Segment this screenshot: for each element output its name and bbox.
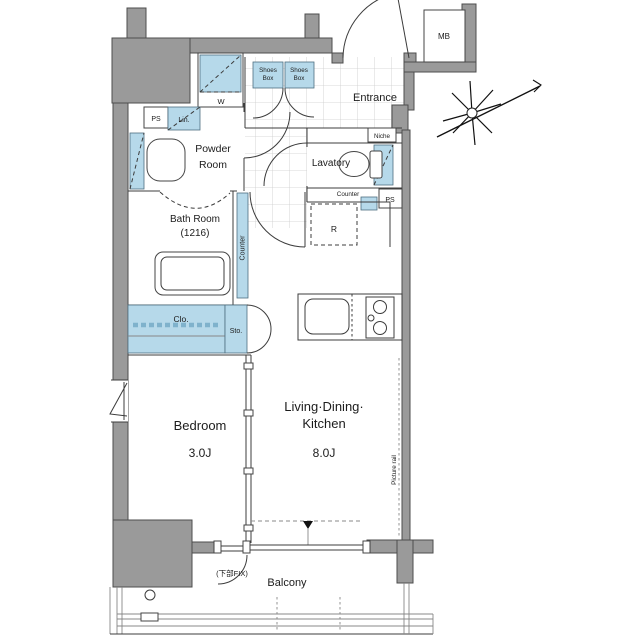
- closet: [128, 305, 225, 353]
- wash-basin: [147, 139, 185, 181]
- label-niche: Niche: [374, 133, 391, 140]
- ldk-sliding-window: [250, 545, 364, 550]
- label-counter-lavatory: Counter: [337, 191, 359, 198]
- hall-counter: Counter: [237, 193, 248, 298]
- label-counter-hall: Counter: [240, 235, 247, 261]
- label-shoes-box-1: Shoes: [259, 67, 277, 74]
- bedroom-balcony-door: [221, 546, 243, 551]
- compass-arrowhead: [533, 80, 541, 92]
- label-picture-rail: Picture rail: [391, 455, 398, 485]
- meter-box: MB: [424, 10, 465, 62]
- balcony-drain: [145, 590, 155, 600]
- label-refrigerator: R: [331, 224, 337, 234]
- balcony-railing: [117, 614, 433, 626]
- balcony-left-edge: [110, 587, 122, 634]
- floor-plan: MB Entrance Shoes Box Shoes Box W PS Lin…: [0, 0, 640, 639]
- entrance-door-arc: [343, 0, 397, 58]
- label-ldk-size: 8.0J: [313, 446, 336, 460]
- svg-text:(1216): (1216): [181, 228, 210, 239]
- svg-text:Box: Box: [263, 75, 275, 82]
- balcony-partition: [277, 597, 340, 632]
- label-bedroom: Bedroom: [174, 418, 227, 433]
- label-storage: Sto.: [230, 328, 243, 335]
- svg-text:Kitchen: Kitchen: [302, 416, 345, 431]
- washer-closet: W: [198, 53, 243, 107]
- svg-text:Room: Room: [199, 159, 227, 171]
- label-balcony: Balcony: [267, 577, 307, 589]
- label-washer: W: [217, 97, 225, 106]
- svg-text:Box: Box: [294, 75, 306, 82]
- label-fix-note: (下部FIX): [216, 568, 248, 578]
- label-entrance: Entrance: [353, 92, 397, 104]
- label-bedroom-size: 3.0J: [189, 446, 212, 460]
- toilet-tank: [370, 151, 382, 178]
- label-mb: MB: [438, 32, 450, 41]
- compass-center: [467, 108, 477, 118]
- label-lavatory: Lavatory: [312, 158, 350, 169]
- label-powder-room: Powder: [195, 143, 231, 155]
- label-linen: Lin.: [178, 117, 189, 124]
- lavatory-counter: [361, 197, 377, 210]
- label-shoes-box-2: Shoes: [290, 67, 308, 74]
- label-ldk: Living·Dining·: [284, 399, 363, 414]
- label-bath-room: Bath Room: [170, 214, 220, 225]
- bathtub: [155, 252, 230, 295]
- floor-plan-page: MB Entrance Shoes Box Shoes Box W PS Lin…: [0, 0, 640, 639]
- compass-north-arrow: [437, 80, 541, 145]
- balcony-vent: [141, 613, 158, 621]
- label-ps-top: PS: [151, 116, 161, 123]
- label-closet: Clo.: [173, 314, 188, 324]
- entrance-door-leaf: [397, 0, 409, 58]
